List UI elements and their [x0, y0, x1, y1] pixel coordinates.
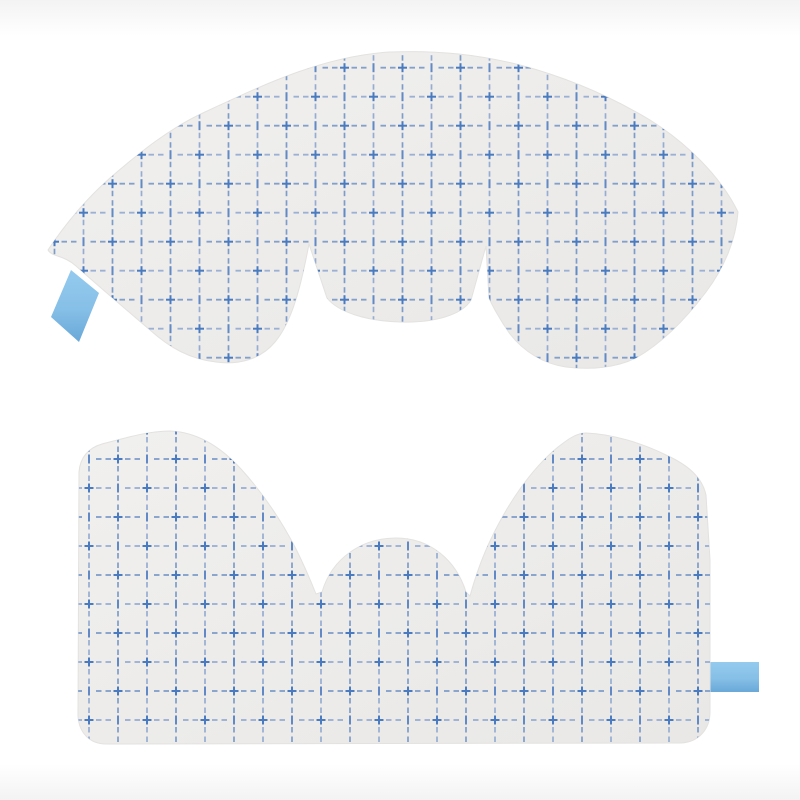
- drape-photo-canvas: [0, 0, 800, 800]
- product-photo: [0, 0, 800, 800]
